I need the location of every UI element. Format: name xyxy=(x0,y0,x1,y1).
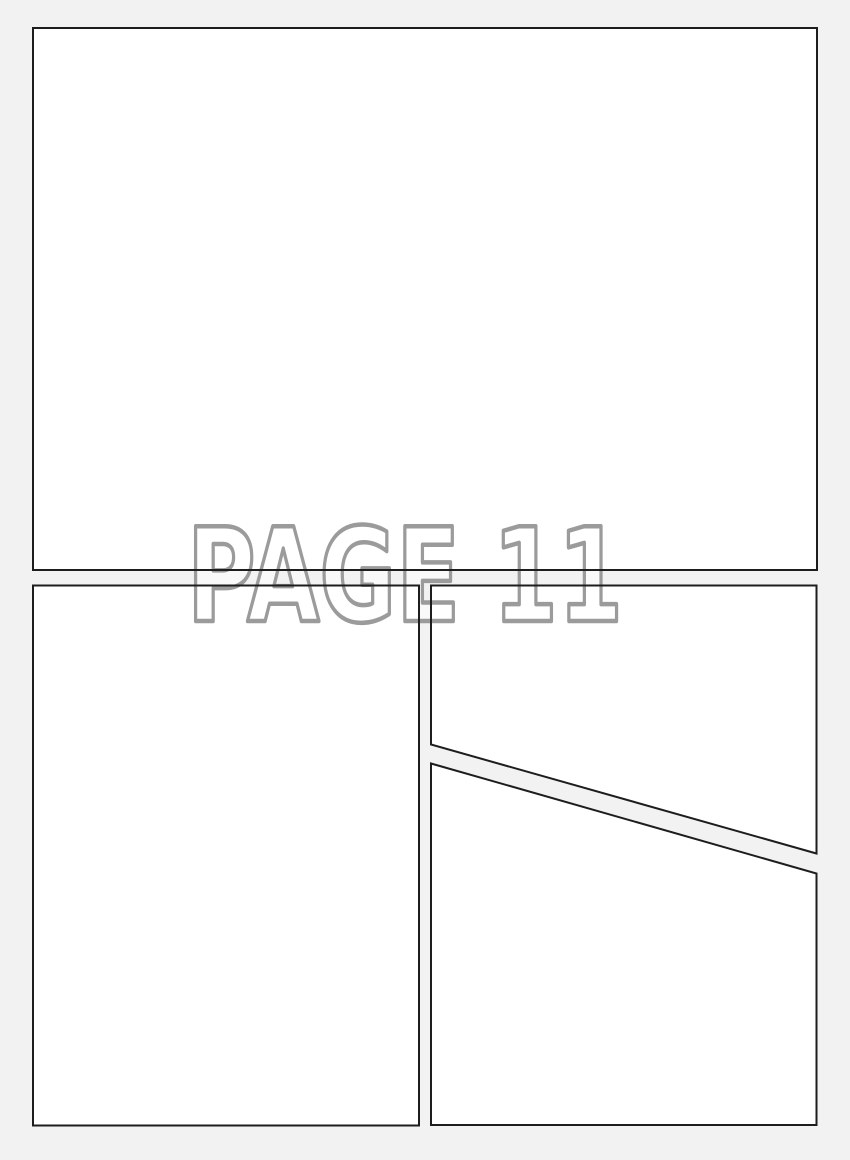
panel-top-fill xyxy=(33,28,817,570)
panel-bottom-left-fill xyxy=(33,586,419,1126)
comic-page-canvas: PAGE 11 xyxy=(0,0,850,1160)
comic-page-template: PAGE 11 xyxy=(0,0,850,1160)
page-number-layer: PAGE 11 xyxy=(187,500,623,652)
page-number-label: PAGE 11 xyxy=(187,500,623,652)
